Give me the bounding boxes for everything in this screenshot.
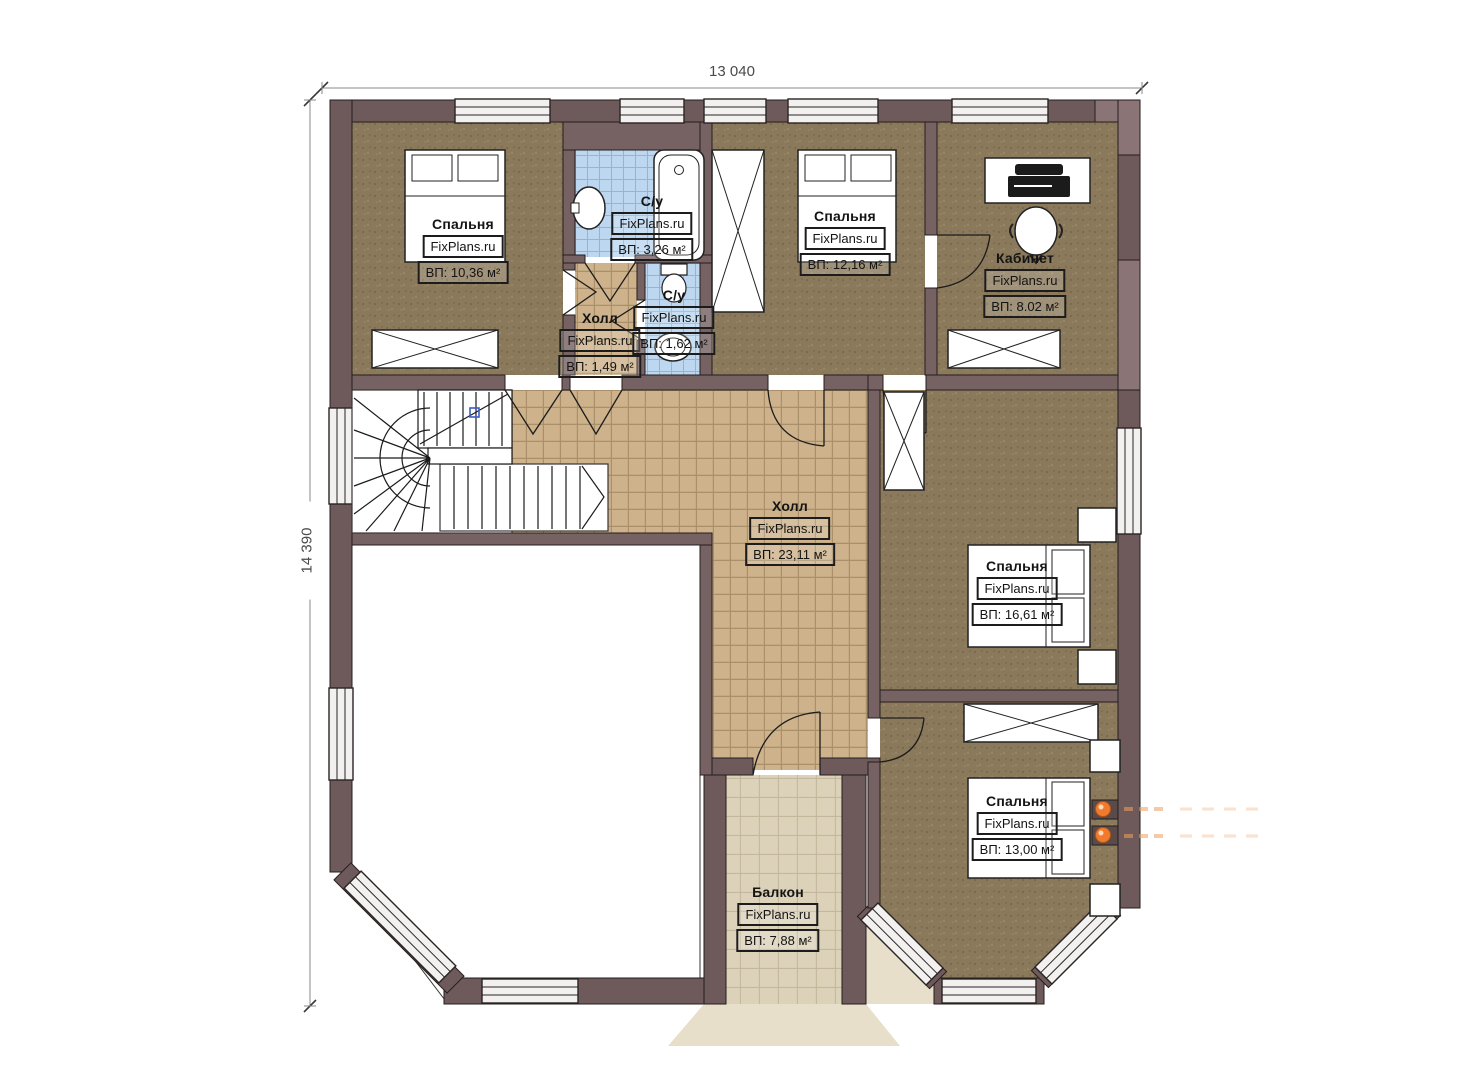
room-name: Спальня [972,558,1063,574]
watermark: FixPlans.ru [749,517,830,540]
room-label-bedroom-4: Спальня FixPlans.ru ВП: 13,00 м² [972,793,1063,861]
dimension-height-label: 14 390 [299,502,316,600]
room-area: ВП: 16,61 м² [972,603,1063,626]
window-left-2 [329,688,353,780]
watermark: FixPlans.ru [976,577,1057,600]
wardrobe-icon [884,392,924,490]
room-area: ВП: 3,26 м² [610,238,693,261]
radiator-icon [1092,826,1262,845]
room-label-balcony: Балкон FixPlans.ru ВП: 7,88 м² [736,884,819,952]
nightstand-icon [1090,740,1120,772]
room-name: С/у [632,287,715,303]
radiator-icon [1092,800,1262,819]
window-left-1 [329,408,353,504]
room-label-hall-small: Холл FixPlans.ru ВП: 1,49 м² [558,310,641,378]
room-area: ВП: 8.02 м² [983,295,1066,318]
room-label-bedroom-2: Спальня FixPlans.ru ВП: 12,16 м² [800,208,891,276]
dimension-width-label: 13 040 [702,63,762,80]
balcony-apron [668,1004,900,1046]
room-label-bathroom-2: С/у FixPlans.ru ВП: 1,62 м² [632,287,715,355]
window-top-4 [788,99,878,123]
window-top-5 [952,99,1048,123]
room-label-bedroom-3: Спальня FixPlans.ru ВП: 16,61 м² [972,558,1063,626]
room-name: Холл [558,310,641,326]
watermark: FixPlans.ru [737,903,818,926]
wardrobe-icon [948,330,1060,368]
room-area: ВП: 7,88 м² [736,929,819,952]
nightstand-icon [1090,884,1120,916]
window-top-2 [620,99,684,123]
watermark: FixPlans.ru [984,269,1065,292]
room-area: ВП: 10,36 м² [418,261,509,284]
room-label-bedroom-1: Спальня FixPlans.ru ВП: 10,36 м² [418,216,509,284]
room-label-bathroom-1: С/у FixPlans.ru ВП: 3,26 м² [610,193,693,261]
nightstand-icon [1078,508,1116,542]
nightstand-icon [1078,650,1116,684]
room-name: С/у [610,193,693,209]
room-name: Балкон [736,884,819,900]
watermark: FixPlans.ru [804,227,885,250]
wardrobe-icon [712,150,764,312]
wardrobe-icon [372,330,498,368]
room-name: Спальня [800,208,891,224]
window-bay-right-bottom [942,979,1036,1003]
room-name: Спальня [418,216,509,232]
room-area: ВП: 13,00 м² [972,838,1063,861]
window-bay-left-bottom [482,979,578,1003]
watermark: FixPlans.ru [422,235,503,258]
wardrobe-icon [964,704,1098,742]
window-top-3 [704,99,766,123]
room-area: ВП: 1,49 м² [558,355,641,378]
watermark: FixPlans.ru [559,329,640,352]
room-name: Холл [745,498,835,514]
room-name: Спальня [972,793,1063,809]
room-area: ВП: 1,62 м² [632,332,715,355]
desk-icon [985,158,1090,203]
room-area: ВП: 23,11 м² [745,543,835,566]
watermark: FixPlans.ru [633,306,714,329]
watermark: FixPlans.ru [976,812,1057,835]
room-label-hall-main: Холл FixPlans.ru ВП: 23,11 м² [745,498,835,566]
window-right-1 [1117,428,1141,534]
room-label-office: Кабинет FixPlans.ru ВП: 8.02 м² [983,250,1066,318]
watermark: FixPlans.ru [611,212,692,235]
window-top-1 [455,99,550,123]
room-area: ВП: 12,16 м² [800,253,891,276]
room-name: Кабинет [983,250,1066,266]
